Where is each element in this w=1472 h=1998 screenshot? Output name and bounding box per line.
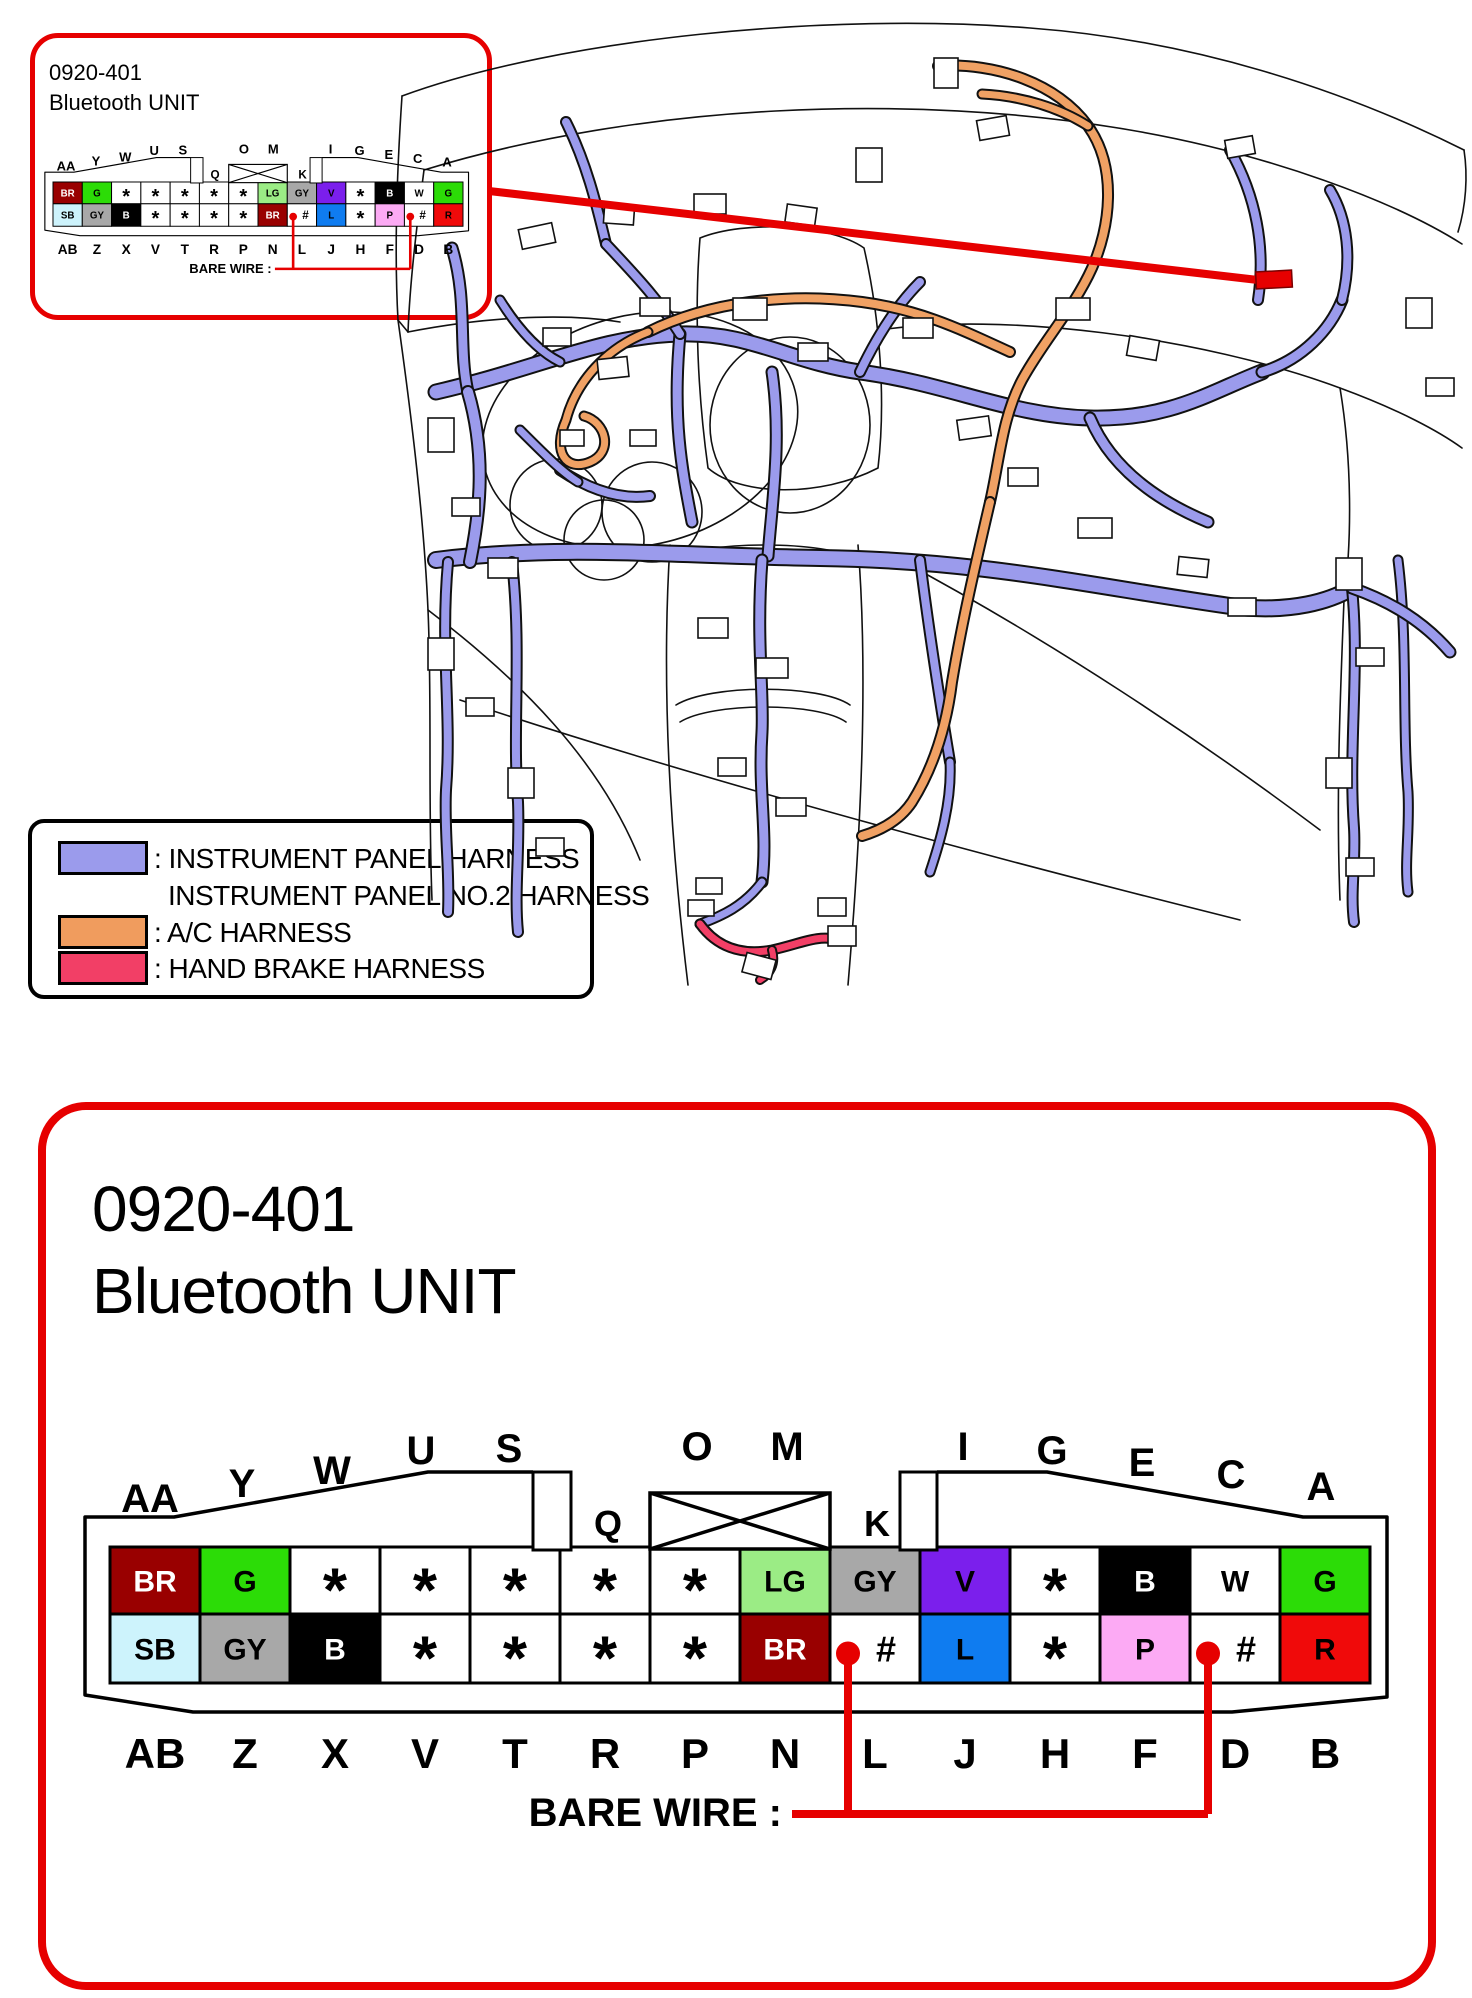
harness-tube-casing <box>862 502 990 836</box>
harness-tube-casing <box>860 282 920 372</box>
harness-tube-casing <box>436 552 1352 609</box>
instrument-panel-no2-harness-label: INSTRUMENT PANEL NO.2 HARNESS <box>168 880 649 912</box>
instrument-panel-harness-swatch <box>58 841 148 875</box>
callout-code: 0920-401 <box>49 58 199 88</box>
ac-harness-swatch <box>58 915 148 949</box>
harness-tube-casing <box>468 392 480 562</box>
panel-code: 0920-401 <box>92 1168 516 1250</box>
harness-tube-casing <box>606 244 680 334</box>
connector-block <box>742 952 776 979</box>
harness-tube-casing <box>920 560 950 762</box>
connector-block <box>718 758 746 776</box>
connector-block <box>1225 136 1256 159</box>
harness-tube-casing <box>436 334 1262 418</box>
connector-block <box>603 205 634 225</box>
harness-tube-casing <box>560 332 648 465</box>
harness-tube-casing <box>1330 190 1347 300</box>
harness-tube-casing <box>1352 588 1355 922</box>
connector-block <box>428 418 454 452</box>
connector-block <box>1426 378 1454 396</box>
harness-tube-casing <box>700 882 762 924</box>
connector-block <box>466 698 494 716</box>
connector-block <box>1406 298 1432 328</box>
service-manual-page: 0920-401 Bluetooth UNIT : INSTRUMENT PAN… <box>0 0 1472 1998</box>
connector-block <box>518 223 555 250</box>
connector-block <box>560 430 584 446</box>
connector-block <box>698 618 728 638</box>
connector-block <box>1356 648 1384 666</box>
bluetooth-unit-location-highlight <box>1256 270 1293 289</box>
connector-block <box>630 430 656 446</box>
callout-unit-name: Bluetooth UNIT <box>49 88 199 118</box>
connector-block <box>818 898 846 916</box>
harness-legend: : INSTRUMENT PANEL HARNESS INSTRUMENT PA… <box>28 819 594 999</box>
connector-block <box>1228 598 1256 616</box>
callout-leader-line <box>489 191 1258 280</box>
callout-title: 0920-401 Bluetooth UNIT <box>49 58 199 118</box>
panel-unit-name: Bluetooth UNIT <box>92 1250 516 1332</box>
panel-title: 0920-401 Bluetooth UNIT <box>92 1168 516 1332</box>
connector-block <box>798 343 828 361</box>
harness-tube-casing <box>700 924 838 952</box>
connector-detail-panel: 0920-401 Bluetooth UNIT <box>38 1102 1436 1990</box>
connector-block <box>1326 758 1352 788</box>
connector-block <box>776 798 806 816</box>
instrument-panel-harness-paths <box>436 122 1450 932</box>
harness-tube-casing <box>930 762 950 872</box>
harness-tube-casing <box>560 470 650 497</box>
ac-harness-label: : A/C HARNESS <box>154 917 351 949</box>
connector-block <box>452 498 480 516</box>
harness-tube-casing <box>677 334 692 522</box>
harness-tube-casing <box>1398 560 1408 892</box>
harness-tube-casing <box>648 298 1010 352</box>
connector-block <box>488 558 518 578</box>
connector-block <box>696 878 722 894</box>
connector-block <box>733 298 767 320</box>
harness-tube-casing <box>520 430 578 482</box>
connector-block <box>756 658 788 678</box>
instrument-panel-harness-label: : INSTRUMENT PANEL HARNESS <box>154 843 579 875</box>
hand-brake-harness-paths <box>700 924 838 980</box>
ac-harness-paths <box>560 66 1108 836</box>
harness-tube-casing <box>500 300 560 362</box>
connector-block <box>828 926 856 946</box>
connector-block <box>785 204 817 226</box>
harness-tube-casing <box>760 950 773 980</box>
harness-tube-casing <box>1090 418 1208 522</box>
connector-block <box>694 194 726 214</box>
connector-callout-box: 0920-401 Bluetooth UNIT <box>30 33 492 320</box>
connector-block <box>903 318 933 338</box>
harness-tube-casing <box>566 122 606 244</box>
connector-block <box>957 416 991 440</box>
connector-block <box>934 58 958 88</box>
connector-block <box>1056 298 1090 320</box>
harness-tube-casing <box>1230 150 1261 300</box>
connector-block <box>597 356 629 379</box>
harness-tube-casing <box>768 372 776 556</box>
connector-block <box>1177 556 1209 577</box>
hand-brake-harness-swatch <box>58 951 148 985</box>
harness-tube-casing <box>938 66 1108 502</box>
harness-tube-casing <box>760 560 764 882</box>
connector-block <box>976 116 1009 141</box>
connector-block <box>543 328 571 346</box>
connector-block <box>1078 518 1112 538</box>
connector-block <box>1008 468 1038 486</box>
harness-tube-casing <box>1262 300 1342 372</box>
connector-block <box>428 638 454 670</box>
connector-block <box>1126 336 1159 361</box>
connector-block <box>508 768 534 798</box>
connector-block <box>1346 858 1374 876</box>
connector-block <box>856 148 882 182</box>
connector-block <box>640 298 670 316</box>
harness-tube-casing <box>982 94 1088 126</box>
connector-block <box>688 900 714 916</box>
hand-brake-harness-label: : HAND BRAKE HARNESS <box>154 953 485 985</box>
connector-block <box>1336 558 1362 590</box>
harness-tube-casing <box>1352 588 1450 652</box>
